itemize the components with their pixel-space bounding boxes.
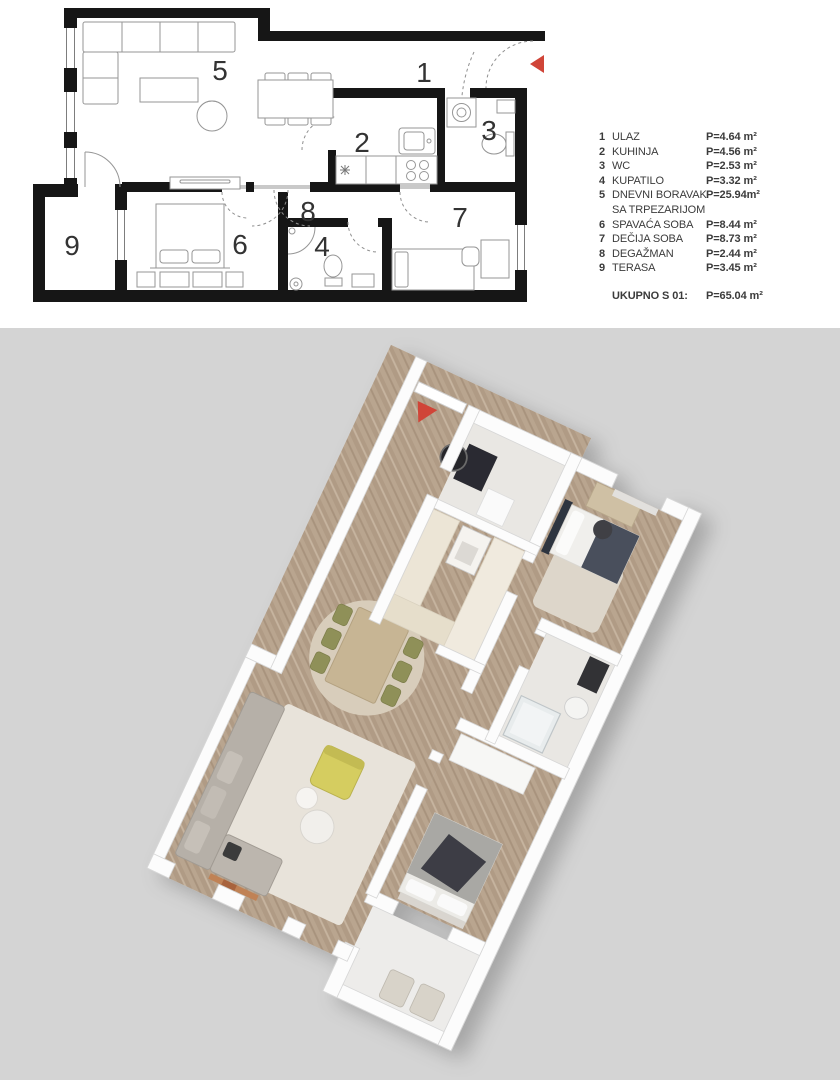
stove-star-icon: [340, 165, 350, 175]
kitchen-furniture-2d: [336, 128, 437, 184]
window-icon: [118, 210, 125, 260]
livingroom-furniture-2d: [83, 22, 333, 189]
room-label-2: 2: [354, 127, 370, 158]
room-label-7: 7: [452, 202, 468, 233]
room-label-1: 1: [416, 57, 432, 88]
room-label-9: 9: [64, 230, 80, 261]
floorplan-2d-section: 1 2 3 4 5 6 7 8 9 1ULAZP=4.64 m² 2KUHINJ…: [0, 0, 840, 328]
legend-row: 7DEČIJA SOBAP=8.73 m²: [599, 232, 824, 247]
kidsroom-furniture-2d: [392, 240, 509, 290]
floorplan-3d-render: [0, 328, 840, 1080]
floorplan-sheet: 1 2 3 4 5 6 7 8 9 1ULAZP=4.64 m² 2KUHINJ…: [0, 0, 840, 1080]
window-icon: [67, 92, 75, 132]
legend-row-continuation: SA TRPEZARIJOM: [599, 203, 824, 218]
window-icon: [67, 148, 75, 178]
window-icon: [67, 28, 75, 68]
legend-row: 1ULAZP=4.64 m²: [599, 130, 824, 145]
bedroom-furniture-2d: [137, 204, 243, 287]
legend-total-row: UKUPNO S 01:P=65.04 m²: [599, 289, 824, 304]
floorplan-3d-section: [0, 328, 840, 1080]
windows-2d: [67, 28, 525, 270]
room-label-6: 6: [232, 229, 248, 260]
bathroom-furniture-2d: [288, 227, 374, 290]
legend-row: 5DNEVNI BORAVAKP=25.94m²: [599, 188, 824, 203]
window-icon: [518, 225, 525, 270]
legend-row: 2KUHINJAP=4.56 m²: [599, 145, 824, 160]
legend-total-label: UKUPNO S 01:: [612, 289, 706, 304]
legend-row: 6SPAVAĆA SOBAP=8.44 m²: [599, 218, 824, 233]
legend-row: 3WCP=2.53 m²: [599, 159, 824, 174]
room-legend: 1ULAZP=4.64 m² 2KUHINJAP=4.56 m² 3WCP=2.…: [599, 130, 824, 304]
legend-total-area: P=65.04 m²: [706, 289, 824, 304]
room-label-4: 4: [314, 231, 330, 262]
legend-row: 4KUPATILOP=3.32 m²: [599, 174, 824, 189]
legend-row: 9TERASAP=3.45 m²: [599, 261, 824, 276]
floorplan-2d-drawing: 1 2 3 4 5 6 7 8 9: [0, 0, 595, 315]
room-label-8: 8: [300, 196, 316, 227]
entrance-marker-icon: [530, 55, 544, 73]
room-label-5: 5: [212, 55, 228, 86]
room-label-3: 3: [481, 115, 497, 146]
legend-row: 8DEGAŽMANP=2.44 m²: [599, 247, 824, 262]
